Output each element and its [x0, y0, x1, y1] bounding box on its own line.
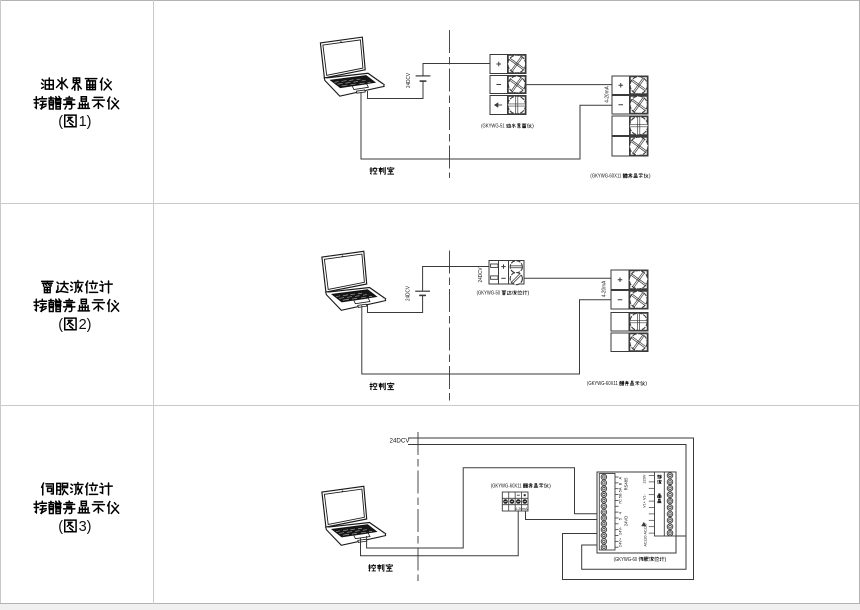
- svg-text:(GKYWG-60: (GKYWG-60: [614, 557, 639, 563]
- svg-text:2): 2): [79, 317, 92, 333]
- svg-text:3): 3): [79, 519, 92, 535]
- svg-text:): ): [665, 557, 667, 563]
- svg-text:(: (: [58, 114, 63, 130]
- svg-text:5B: 5B: [618, 493, 623, 498]
- svg-text:(GKYWG-51: (GKYWG-51: [481, 124, 506, 130]
- svg-text:RS485: RS485: [624, 477, 629, 490]
- svg-text:): ): [645, 381, 647, 387]
- svg-text:V1+ V1-: V1+ V1-: [643, 493, 647, 508]
- svg-text:(GKYWG-50: (GKYWG-50: [477, 291, 502, 297]
- svg-text:(GKYWG-60X11: (GKYWG-60X11: [590, 174, 622, 180]
- svg-text:B: B: [618, 482, 623, 485]
- svg-text:): ): [649, 174, 651, 180]
- svg-text:4-20mA: 4-20mA: [601, 280, 607, 297]
- svg-text:(: (: [58, 519, 63, 535]
- svg-text:24DCV: 24DCV: [406, 73, 412, 88]
- svg-text:24VD: 24VD: [624, 516, 629, 526]
- svg-text:4-20mA: 4-20mA: [605, 86, 611, 103]
- svg-text:(GKYWG-60X11: (GKYWG-60X11: [491, 483, 523, 489]
- svg-text:4-20mA: 4-20mA: [515, 507, 528, 511]
- svg-text:(: (: [58, 317, 63, 333]
- svg-text:24V+: 24V+: [618, 537, 623, 547]
- svg-text:24DCV: 24DCV: [478, 267, 484, 282]
- svg-text:24V-: 24V-: [618, 526, 623, 535]
- svg-text:): ): [528, 291, 530, 297]
- svg-text:A: A: [618, 477, 623, 480]
- svg-text:5A: 5A: [618, 487, 623, 492]
- svg-text:): ): [532, 124, 534, 130]
- svg-text:(GKYWG-60X11: (GKYWG-60X11: [587, 381, 619, 387]
- svg-text:): ): [549, 483, 551, 489]
- svg-text:7C: 7C: [618, 499, 623, 504]
- svg-text:1): 1): [79, 114, 92, 130]
- svg-text:24DCV: 24DCV: [390, 438, 411, 445]
- svg-text:24DCV: 24DCV: [405, 286, 411, 301]
- svg-text:220V: 220V: [643, 474, 647, 483]
- svg-text:AC220 AC220: AC220 AC220: [643, 524, 647, 547]
